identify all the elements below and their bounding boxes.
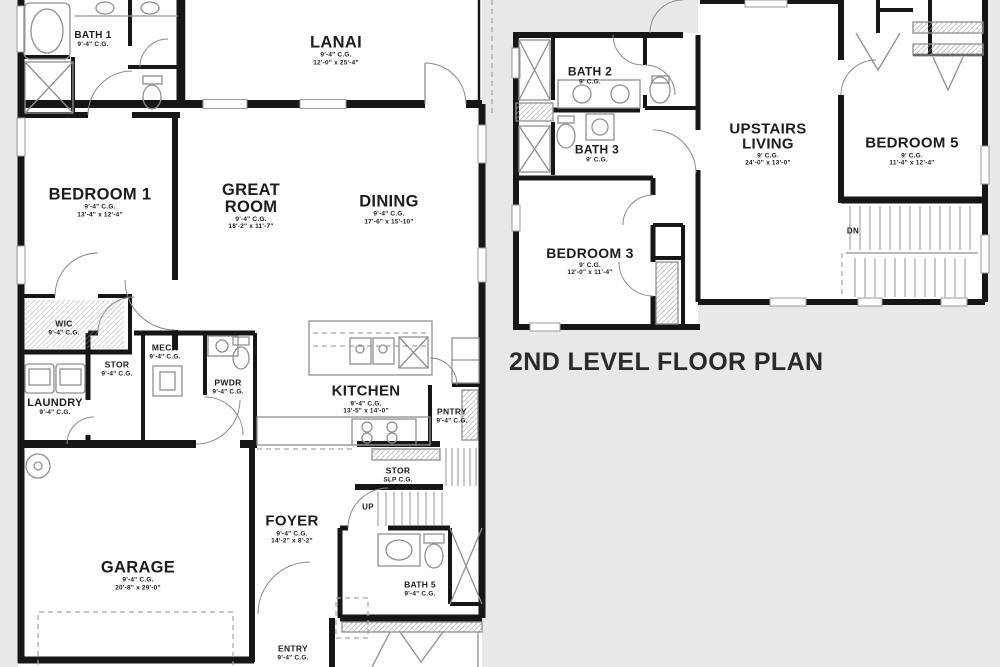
floor-plan-drawing	[0, 0, 1000, 667]
second-level-caption: 2ND LEVEL FLOOR PLAN	[509, 348, 824, 377]
floor-plan-canvas: BATH 1 9'-4" C.G. LANAI 9'-4" C.G. 12'-0…	[0, 0, 1000, 667]
